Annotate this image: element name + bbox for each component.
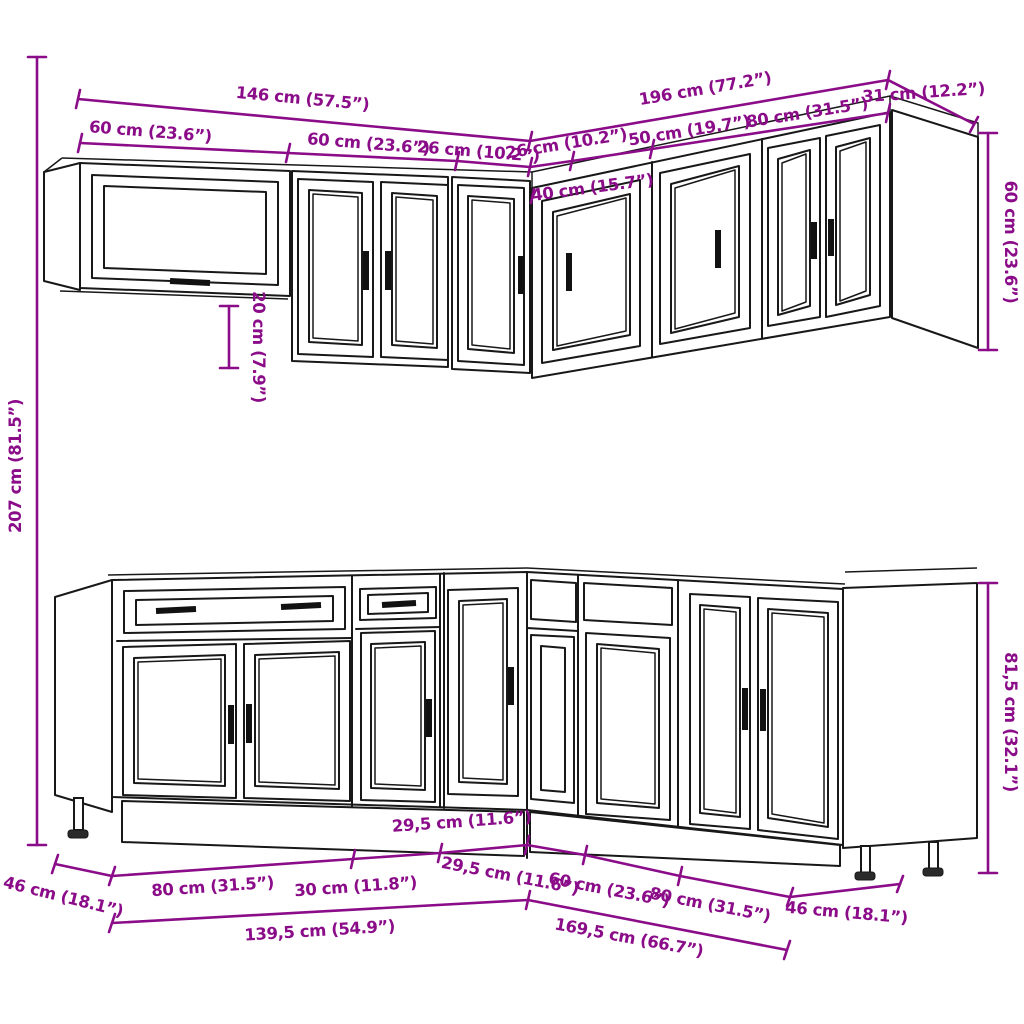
base-left-end-panel: [55, 580, 112, 838]
base-corner-cabinet-right-face: [527, 575, 578, 816]
dim-base-total-left: 139,5 cm (54.9”): [109, 891, 530, 945]
dim-label: 139,5 cm (54.9”): [244, 916, 396, 944]
end-panel-top-edge: [845, 568, 977, 572]
door-panel: [392, 193, 437, 348]
door-panel: [468, 196, 514, 353]
door-panel: [671, 166, 739, 333]
dim-upper-height: 60 cm (23.6”): [979, 133, 1020, 350]
door-panel: [700, 605, 740, 817]
door-panel: [597, 644, 659, 808]
door-panel: [541, 646, 565, 792]
upper-glass-cabinet: [60, 163, 290, 299]
base-cabinet-60-sink: [584, 580, 678, 826]
dim-label: 207 cm (81.5”): [6, 399, 25, 533]
cabinet-leg: [74, 798, 83, 830]
door-panel: [309, 190, 362, 345]
door-panel: [836, 138, 870, 305]
cabinet-foot: [855, 872, 875, 880]
cabinet-foot: [923, 868, 943, 876]
dim-label: 146 cm (57.5”): [235, 83, 370, 114]
door-panel: [778, 150, 810, 315]
base-right-end-panel: [843, 568, 977, 880]
upper-right-end-panel: [892, 110, 978, 348]
dim-glass-cabinet-offset: 20 cm (7.9”): [220, 291, 268, 403]
dim-label: 60 cm (23.6”): [88, 117, 212, 146]
dim-label: 46 cm (18.1”): [1, 873, 125, 921]
upper-left-side-panel: [44, 163, 80, 290]
upper-narrow-cabinet: [452, 177, 530, 373]
door-panel: [255, 652, 339, 789]
dim-label: 46 cm (18.1”): [784, 898, 908, 928]
dim-overall-height: 207 cm (81.5”): [6, 57, 46, 845]
blank-panel: [531, 580, 576, 622]
glass-cabinet-handle: [170, 281, 210, 283]
dim-label: 80 cm (31.5”): [151, 873, 275, 901]
base-cabinet-80-left: [117, 576, 352, 806]
cabinet-leg: [929, 842, 938, 870]
drawer-handle: [281, 605, 321, 607]
base-cabinet-30: [356, 574, 440, 807]
base-cabinet-80-right: [690, 594, 838, 839]
corner-door-panel: [553, 194, 630, 350]
dim-label: 20 cm (7.9”): [249, 291, 268, 403]
glass-cabinet-glass: [104, 186, 266, 274]
upper-right-run: [532, 112, 890, 378]
cabinet-leg: [861, 846, 870, 874]
door-panel: [371, 642, 425, 790]
dim-base-height: 81,5 cm (32.1”): [979, 583, 1020, 873]
upper-double-door-cabinet: [292, 171, 448, 367]
dim-label: 31 cm (12.2”): [862, 79, 986, 107]
drawer-handle: [382, 603, 416, 605]
base-corner-cabinet-left-face: [444, 573, 518, 808]
dim-label: 81,5 cm (32.1”): [1001, 652, 1020, 792]
dim-label: 30 cm (11.8”): [294, 873, 418, 901]
kitchen-cabinet-dimension-diagram: 146 cm (57.5”) 196 cm (77.2”) 31 cm (12.…: [0, 0, 1024, 1024]
drawer-handle: [156, 609, 196, 611]
diagram-canvas: 146 cm (57.5”) 196 cm (77.2”) 31 cm (12.…: [0, 0, 1024, 1024]
door-panel: [459, 599, 507, 784]
door-panel: [768, 609, 828, 827]
dim-label: 169,5 cm (66.7”): [553, 915, 705, 961]
blank-panel: [584, 583, 672, 625]
door-panel: [134, 655, 225, 786]
base-cabinets-drawing: [55, 568, 977, 880]
dim-label: 26 cm (10.2”): [504, 125, 628, 163]
cabinet-foot: [68, 830, 88, 838]
dim-label: 60 cm (23.6”): [1001, 181, 1020, 304]
